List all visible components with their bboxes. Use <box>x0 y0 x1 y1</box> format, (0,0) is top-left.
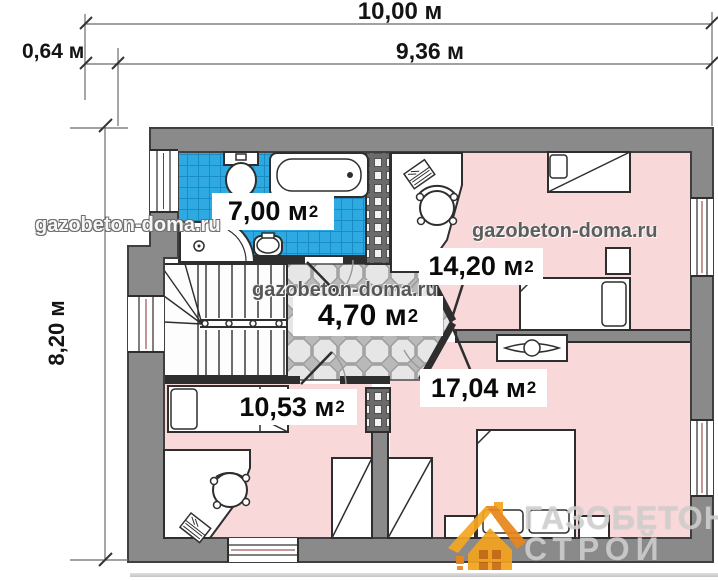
room-area-label-bathroom: 7,00 м2 <box>212 193 334 230</box>
area-value: 4,70 м <box>318 299 407 333</box>
logo-house-icon <box>446 498 528 570</box>
bathtub-icon <box>270 153 368 197</box>
room-area-label-hallway: 4,70 м2 <box>293 296 443 336</box>
window-right-top <box>691 198 713 276</box>
floor-plan-canvas: 10,00 м 9,36 м 0,64 м 8,20 м 7,00 м2 14,… <box>0 0 718 581</box>
dim-label-total-width: 10,00 м <box>300 0 500 26</box>
area-value: 10,53 м <box>239 392 334 423</box>
logo-text-line2: СТРОЙ <box>524 531 665 568</box>
wardrobe-icon <box>332 458 372 538</box>
window-right-bottom <box>691 420 713 496</box>
dim-label-height: 8,20 м <box>44 266 70 400</box>
nightstand-icon <box>606 248 630 274</box>
single-bed-top-icon <box>548 152 630 192</box>
room-area-label-bedroom-bottom-left: 10,53 м2 <box>227 389 357 425</box>
vent-shaft-bottom <box>366 388 390 432</box>
dresser-mirror-icon <box>497 335 567 361</box>
area-value: 14,20 м <box>428 251 523 282</box>
window-bottom <box>228 538 298 562</box>
office-chair-icon <box>417 186 458 225</box>
wall-between-bedrooms-right <box>456 330 691 342</box>
toilet-icon <box>224 152 258 197</box>
area-sup: 2 <box>408 305 418 327</box>
wardrobe-icon <box>388 458 432 538</box>
watermark-site: gazobeton-doma.ru <box>252 279 438 302</box>
area-value: 7,00 м <box>228 196 308 227</box>
dim-label-inner-width: 9,36 м <box>330 38 530 65</box>
area-value: 17,04 м <box>431 373 526 404</box>
sink-icon <box>254 233 282 256</box>
office-chair-icon <box>211 473 250 509</box>
window-left-stairs <box>128 296 164 352</box>
single-bed-bottom-icon <box>520 278 630 330</box>
vent-shaft-bathroom <box>366 152 390 264</box>
room-area-label-bedroom-bottom-right: 17,04 м2 <box>420 369 547 407</box>
area-sup: 2 <box>309 202 318 222</box>
area-sup: 2 <box>335 397 344 417</box>
area-sup: 2 <box>524 257 533 277</box>
dim-label-left-offset: 0,64 м <box>22 40 84 64</box>
photo-edge-artifact <box>130 573 718 577</box>
watermark-site: gazobeton-doma.ru <box>472 220 658 243</box>
window-left-bathroom <box>150 150 178 212</box>
watermark-site: gazobeton-doma.ru <box>35 214 221 237</box>
area-sup: 2 <box>527 378 536 398</box>
